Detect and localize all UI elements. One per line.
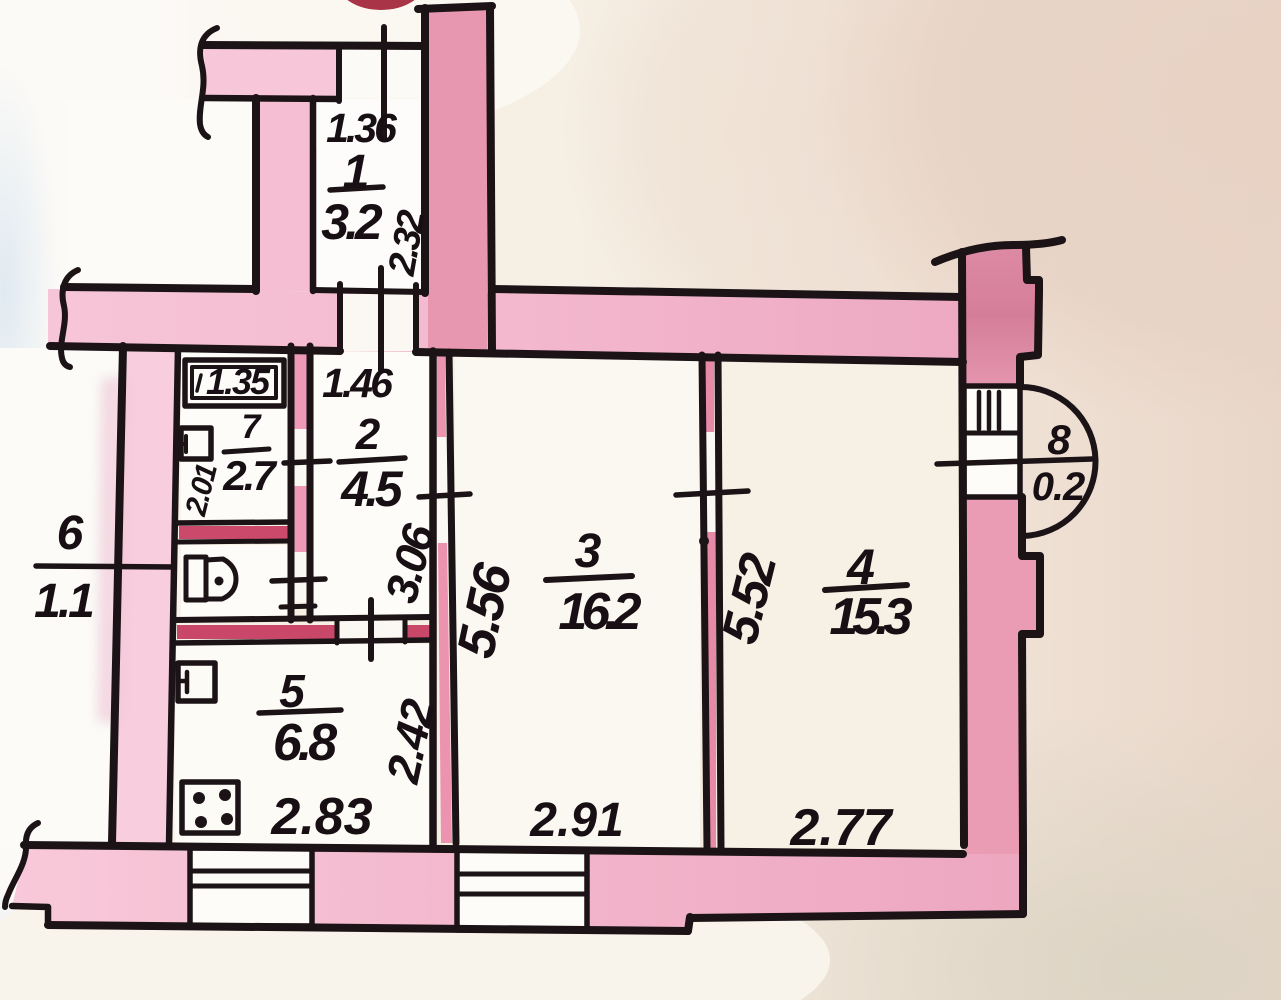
svg-text:2.7: 2.7 (222, 452, 277, 499)
svg-text:4: 4 (846, 539, 875, 595)
svg-text:6.8: 6.8 (273, 714, 337, 772)
svg-text:1.36: 1.36 (326, 105, 398, 151)
svg-text:15.3: 15.3 (829, 588, 912, 646)
svg-text:1.46: 1.46 (322, 360, 394, 406)
svg-text:2: 2 (355, 410, 381, 459)
svg-text:5: 5 (279, 665, 306, 717)
svg-text:2.91: 2.91 (529, 794, 623, 847)
svg-text:3.2: 3.2 (321, 194, 383, 250)
svg-text:7: 7 (242, 408, 263, 446)
svg-text:2.77: 2.77 (789, 799, 893, 857)
svg-text:8: 8 (1047, 416, 1071, 463)
svg-text:2.83: 2.83 (270, 788, 372, 846)
svg-text:6: 6 (57, 507, 84, 560)
svg-text:3: 3 (575, 525, 602, 578)
svg-text:1.35: 1.35 (206, 361, 271, 402)
svg-text:1: 1 (343, 146, 370, 199)
svg-text:1.1: 1.1 (34, 575, 93, 628)
svg-text:4.5: 4.5 (340, 461, 404, 517)
svg-text:16.2: 16.2 (558, 583, 641, 641)
svg-text:0.2: 0.2 (1032, 465, 1085, 509)
